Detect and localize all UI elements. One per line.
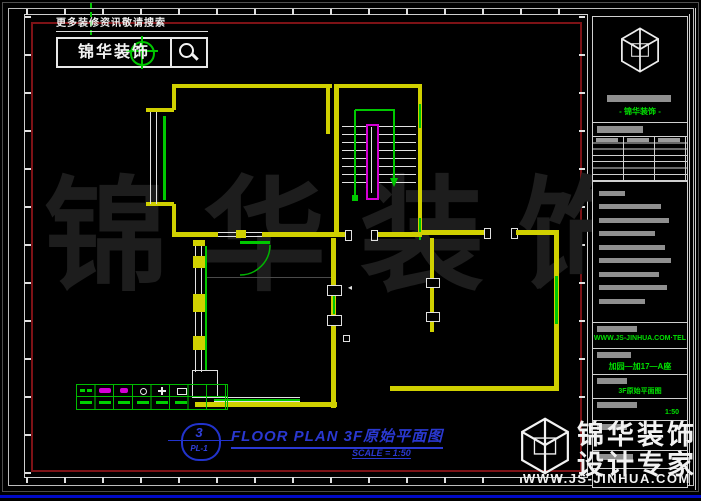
section-label-bar [597, 352, 631, 358]
note-line [599, 258, 671, 263]
door-swing-arc [240, 245, 270, 275]
legend-symbol-magenta-switch-small [115, 385, 133, 396]
legend-label [134, 397, 152, 408]
legend-symbol-green-arrow [77, 385, 95, 396]
legend-label [115, 397, 133, 408]
drawing-name: 3F原始平面图 [593, 386, 687, 396]
magnifier-icon-handle [190, 52, 198, 60]
contact-text: WWW.JS-JINHUA.COM·TEL [593, 335, 687, 342]
table-header-bar [627, 138, 649, 142]
note-line [599, 204, 661, 209]
project-name: 加园—加17—A座 [593, 361, 687, 372]
note-line [599, 245, 665, 250]
note-line [599, 191, 625, 196]
search-brand-text: 锦华装饰 [58, 39, 170, 66]
legend-label [172, 397, 190, 408]
note-line [599, 285, 667, 290]
drawing-title: FLOOR PLAN 3F原始平面图 [231, 425, 443, 449]
section-label-bar [597, 126, 643, 133]
table-header-bar [658, 138, 680, 142]
callout-divider-line [168, 440, 232, 441]
callout-sheet-number: PL-1 [181, 444, 217, 453]
legend-symbol-cross [153, 385, 171, 396]
note-line [599, 218, 669, 223]
title-block-label-row [593, 123, 687, 137]
callout-number: 3 [181, 425, 217, 440]
note-line [599, 272, 659, 277]
company-name: - 锦华装饰 - [593, 106, 687, 117]
cad-drawing-sheet: 锦华装饰 更多装修资讯敬请搜索 锦华装饰 [0, 0, 701, 501]
drawing-name-section: 3F原始平面图 [593, 375, 687, 399]
project-section: 加园—加17—A座 [593, 349, 687, 375]
legend-symbol-lamp-circle [134, 385, 152, 396]
section-label-bar [597, 378, 627, 384]
legend-label [96, 397, 114, 408]
legend-symbol-box [172, 385, 190, 396]
table-header-bar [596, 138, 618, 142]
stair-route-line [355, 110, 394, 196]
stair-route-dot [352, 195, 358, 201]
note-line [599, 231, 655, 236]
legend-label [153, 397, 171, 408]
drawing-scale: SCALE = 1:50 [352, 448, 411, 459]
cube-logo-icon [619, 27, 661, 73]
search-button[interactable] [172, 39, 206, 66]
section-label-bar [597, 402, 637, 408]
search-widget: 更多装修资讯敬请搜索 锦华装饰 [56, 14, 208, 68]
arrow-down-icon [390, 178, 398, 187]
legend-table [76, 384, 228, 410]
title-block-logo-section: - 锦华装饰 - [593, 27, 687, 123]
contact-section: WWW.JS-JINHUA.COM·TEL [593, 323, 687, 349]
notes-section [593, 191, 687, 323]
revision-table [593, 137, 687, 182]
note-line [599, 299, 645, 304]
search-hint-text: 更多装修资讯敬请搜索 [56, 14, 208, 32]
search-box[interactable]: 锦华装饰 [56, 37, 208, 68]
section-label-bar [597, 326, 637, 332]
legend-symbol-magenta-switch [96, 385, 114, 396]
brand-watermark-url: WWW.JS-JINHUA.COM [523, 471, 691, 486]
logo-caption-bar [607, 95, 671, 102]
legend-label [77, 397, 95, 408]
cube-logo-icon [517, 417, 573, 475]
